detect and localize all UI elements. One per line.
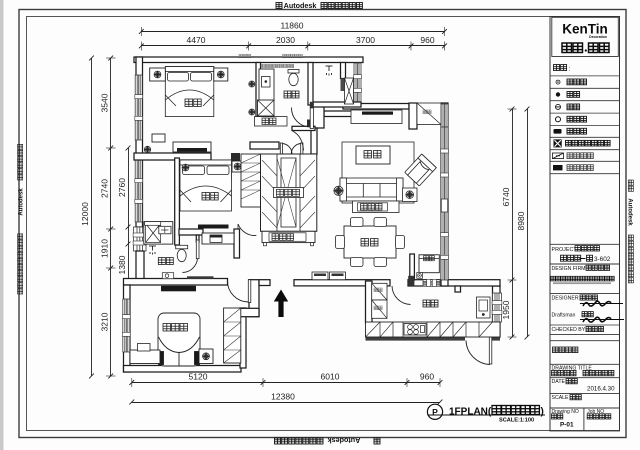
svg-text:3540: 3540 bbox=[100, 93, 110, 112]
svg-text:CHECKED BY: CHECKED BY bbox=[552, 327, 586, 333]
svg-text:960: 960 bbox=[420, 372, 434, 382]
svg-text:8980: 8980 bbox=[516, 211, 526, 230]
svg-text:960: 960 bbox=[420, 35, 434, 45]
svg-text:Decoration: Decoration bbox=[589, 35, 607, 39]
svg-text:2016.4.30: 2016.4.30 bbox=[587, 385, 615, 392]
svg-text:2760: 2760 bbox=[117, 178, 127, 197]
svg-text:PROJECT: PROJECT bbox=[552, 247, 578, 253]
svg-text:1950: 1950 bbox=[501, 300, 511, 319]
svg-text:12000: 12000 bbox=[80, 202, 90, 226]
svg-text:SCALE: SCALE bbox=[552, 395, 570, 401]
svg-text:2740: 2740 bbox=[100, 179, 110, 198]
svg-text:1380: 1380 bbox=[117, 255, 127, 274]
svg-text:P-01: P-01 bbox=[560, 422, 574, 429]
svg-text:6010: 6010 bbox=[321, 372, 340, 382]
svg-text:3700: 3700 bbox=[356, 35, 375, 45]
svg-text:1910: 1910 bbox=[100, 239, 110, 258]
svg-text:Autodesk: Autodesk bbox=[328, 436, 361, 445]
svg-text:): ) bbox=[541, 407, 544, 418]
svg-text:Autodesk: Autodesk bbox=[284, 1, 317, 10]
svg-text:11860: 11860 bbox=[280, 21, 303, 31]
svg-text:DATE: DATE bbox=[552, 379, 566, 385]
svg-text:Autodesk: Autodesk bbox=[627, 198, 633, 226]
svg-text:Draftsman: Draftsman bbox=[552, 312, 576, 318]
svg-text:3-602: 3-602 bbox=[594, 256, 611, 263]
svg-text:6740: 6740 bbox=[501, 187, 511, 206]
svg-text:SCALE:1:100: SCALE:1:100 bbox=[499, 418, 534, 424]
svg-text:4470: 4470 bbox=[187, 35, 206, 45]
svg-text:1FPLAN(: 1FPLAN( bbox=[449, 407, 492, 418]
svg-text:12380: 12380 bbox=[271, 392, 295, 402]
svg-text:DESIGN FIRM: DESIGN FIRM bbox=[552, 266, 586, 272]
svg-text:2030: 2030 bbox=[276, 35, 295, 45]
svg-text:5120: 5120 bbox=[189, 372, 208, 382]
svg-text:Autodesk: Autodesk bbox=[19, 188, 25, 216]
svg-text:DESIGNER: DESIGNER bbox=[552, 296, 579, 302]
svg-text:3210: 3210 bbox=[100, 312, 110, 331]
